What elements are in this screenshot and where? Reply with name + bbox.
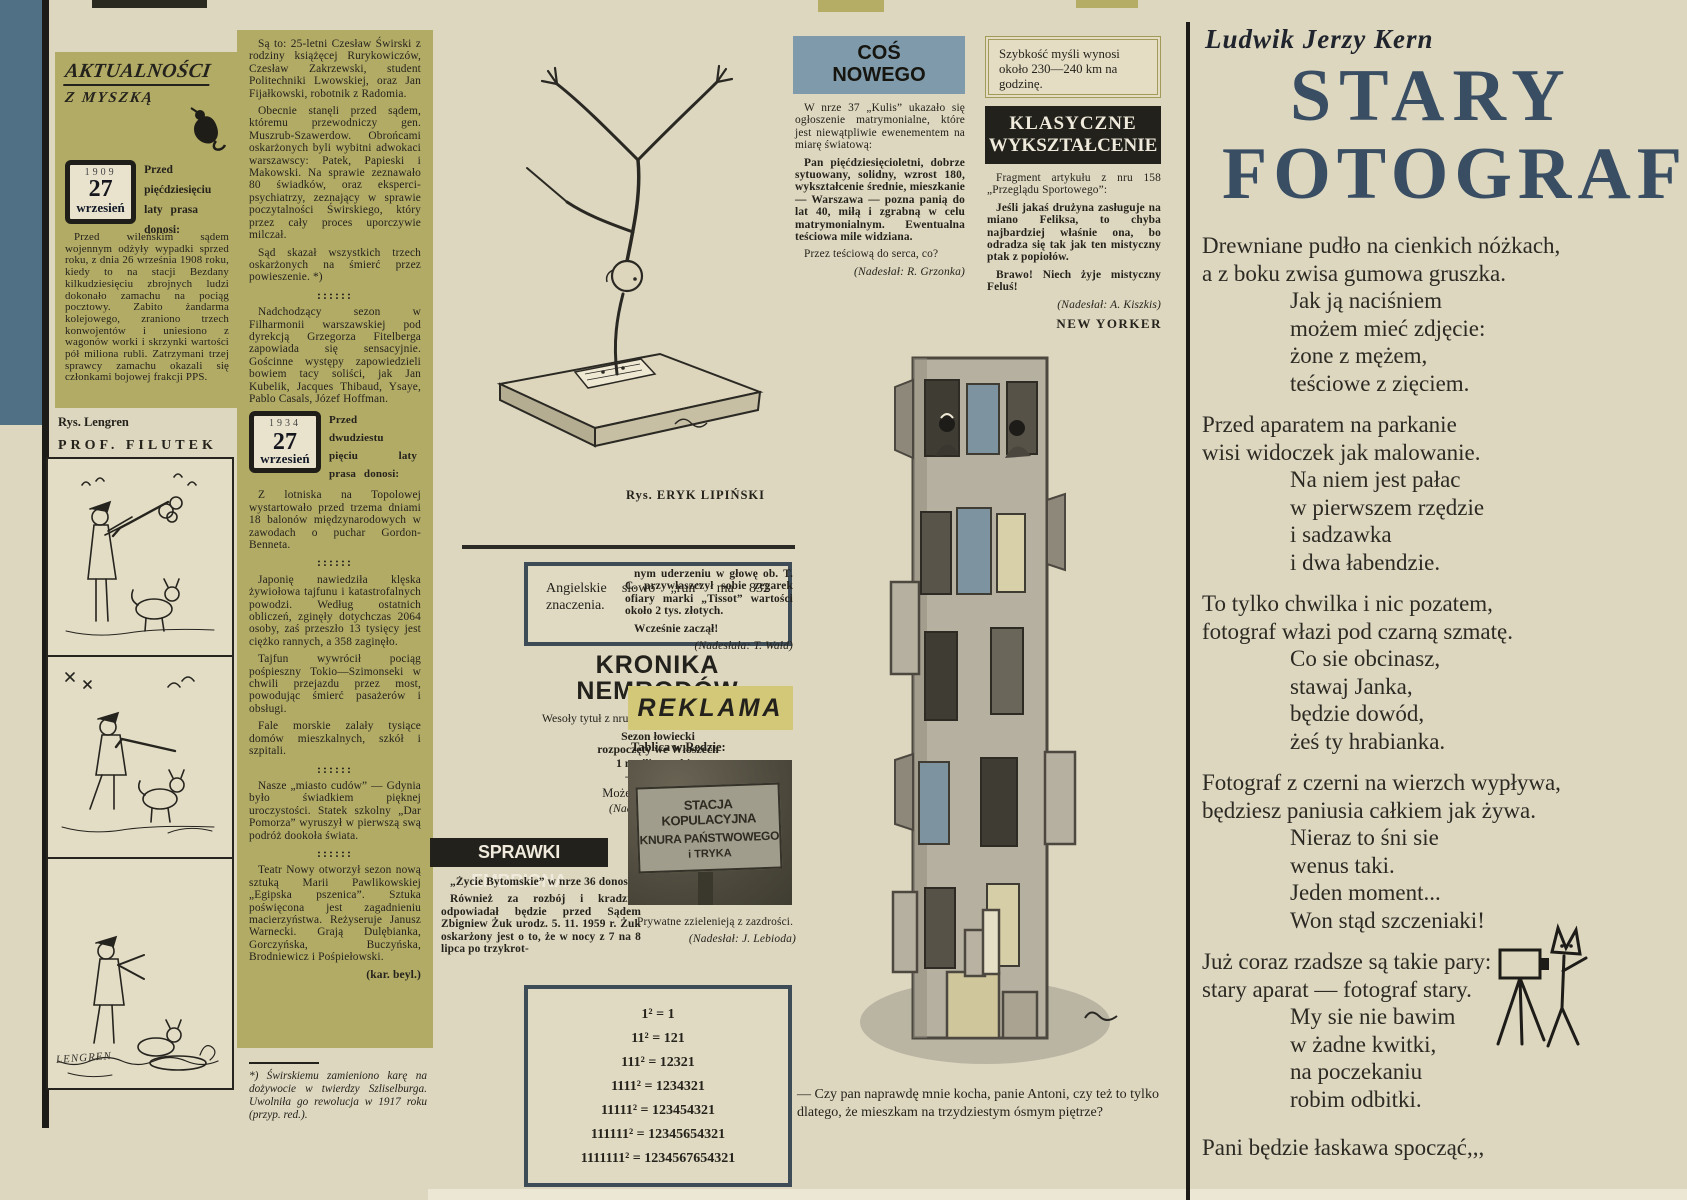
paragraph: Sąd skazał wszystkich trzech oskarżonych… [249,247,421,284]
poem-line: w pierwszem rzędzie [1290,494,1687,522]
masthead: AKTUALNOŚCI Z MYSZKĄ [65,60,229,160]
paragraph: Nadchodzący sezon w Filharmonii warszaws… [249,306,421,405]
lead-1909: Przed pięćdziesięciu laty prasa donosi: [144,160,229,240]
poem-line: stawaj Janka, [1290,673,1687,701]
new-yorker-cartoon-drawing [795,332,1170,1080]
poem-line: żone z mężem, [1290,342,1687,370]
klasyczne-signature: (Nadesłał: A. Kiszkis) [987,299,1161,311]
column-divider-line [1186,22,1190,1200]
poem-line: robim odbitki. [1290,1086,1687,1114]
left-edge-blue-strip [0,0,42,425]
poem-line: Na niem jest pałac [1290,466,1687,494]
column-byline: (kar. beyl.) [249,969,421,981]
filutek-panel-2 [48,657,232,859]
reklama-intro: Tablica w Redzie: [631,740,791,755]
filutek-title: PROF. FILUTEK [58,438,217,454]
new-yorker-cartoon [795,332,1170,1080]
lipinski-cartoon [445,32,795,484]
klasyczne-title-line2: WYKSZTAŁCENIE [985,135,1161,157]
new-yorker-caption: — Czy pan naprawdę mnie kocha, panie Ant… [797,1086,1179,1121]
sign-line-3: i TRYKA [640,846,780,863]
szybkosc-box: Szybkość myśli wynosi około 230—240 km n… [985,36,1161,98]
sign-line-1: STACJA KOPULACYJNA [638,795,779,830]
poem-line: możem mieć zdjęcie: [1290,315,1687,343]
paragraph: Przed wileńskim sądem wojennym odżyły wy… [65,232,229,384]
cos-nowego-p3: Przez teściową do serca, co? [795,248,965,260]
top-edge-tab-olive-2 [1076,0,1138,8]
photographer-drawing [1482,916,1592,1051]
paragraph: Teatr Nowy otworzył sezon nową sztuką Ma… [249,864,421,963]
reklama-banner: REKLAMA [628,686,793,730]
poem-line: i sadzawka [1290,521,1687,549]
cos-nowego-p1: W nrze 37 „Kulis” ukazało się ogłoszenie… [795,102,965,152]
poem-stanza: Drewniane pudło na cienkich nóżkach, a z… [1202,232,1687,397]
bottom-edge-light-strip [428,1189,1687,1200]
poem-line: Przed aparatem na parkanie [1202,411,1687,439]
klasyczne-body: Fragment artykułu z nru 158 „Przeglądu S… [987,172,1161,311]
poem-author: Ludwik Jerzy Kern [1205,24,1434,55]
filutek-panel-1-drawing [48,459,232,653]
date-month: wrzesień [254,453,316,465]
reklama-comment: Prywatne zzielenieją z zazdrości. (Nades… [628,916,796,946]
poem-line: a z boku zwisa gumowa gruszka. [1202,260,1687,288]
cos-nowego-title-line2: NOWEGO [793,64,965,86]
poem-line: stary aparat — fotograf stary. [1202,976,1687,1004]
klasyczne-p1: Fragment artykułu z nru 158 „Przeglądu S… [987,172,1161,197]
sign-line-2: KNURA PAŃSTWOWEGO [639,829,779,848]
paragraph: Japonię nawiedziła klęska żywiołowa tajf… [249,574,421,648]
poem-title-line1: STARY [1290,58,1573,134]
paragraph: Fale morskie zalały tysiące domów mieszk… [249,720,421,757]
date-row-1934: 1934 27 wrzesień Przed dwudziestu pięciu… [249,411,421,483]
reklama-title: REKLAMA [638,694,784,722]
szybkosc-text: Szybkość myśli wynosi około 230—240 km n… [999,47,1147,92]
date-box-1934: 1934 27 wrzesień [249,411,321,473]
poem-line: na poczekaniu [1290,1058,1687,1086]
poem-line: i dwa łabendzie. [1290,549,1687,577]
poem-line: będziesz paniusia całkiem jak żywa. [1202,797,1687,825]
poem-stanza: Przed aparatem na parkanie wisi widoczek… [1202,411,1687,576]
masthead-subtitle: Z MYSZKĄ [64,90,155,107]
magazine-page: AKTUALNOŚCI Z MYSZKĄ 1909 27 wrzesień Pr… [0,0,1687,1200]
lipinski-cartoon-drawing [445,32,795,484]
poem-closing-line: Pani będzie łaskawa spocząć,,, [1202,1134,1484,1162]
math-line: 1111² = 1234321 [536,1075,780,1099]
paragraph: Nasze „miasto cudów” — Gdynia było świad… [249,780,421,842]
paragraph: Z lotniska na Topolowej wystartowało prz… [249,489,421,551]
math-line: 1² = 1 [536,1003,780,1027]
date-box-1909: 1909 27 wrzesień [65,160,136,224]
poem-line: żeś ty hrabianka. [1290,728,1687,756]
cos-nowego-title-line1: COŚ [793,42,965,64]
aktualnosci-panel-column2: Są to: 25-letni Czesław Świrski z rodzin… [237,30,433,1048]
poem-line: wenus taki. [1290,852,1687,880]
klasyczne-banner: KLASYCZNE WYKSZTAŁCENIE [985,106,1161,164]
aktualnosci-panel-1909: AKTUALNOŚCI Z MYSZKĄ 1909 27 wrzesień Pr… [55,52,237,408]
section-separator: :::::: [249,763,421,775]
reklama-sign-photo: STACJA KOPULACYJNA KNURA PAŃSTWOWEGO i T… [628,760,792,905]
date-day: 27 [70,178,131,200]
sprawki-intro: „Życie Bytomskie” w nrze 36 donosi: [441,876,641,888]
date-month: wrzesień [70,200,131,216]
sprawki-continuation: nym uderzeniu w głowę ob. T. C. przywłas… [625,568,793,652]
lengren-credit: Rys. Lengren [58,415,129,430]
poem-body: Drewniane pudło na cienkich nóżkach, a z… [1202,232,1687,1127]
section-separator: :::::: [249,847,421,859]
sprawki-signature: (Nadesłała: T. Wald) [625,640,793,652]
poem-title-line2: FOTOGRAF [1222,136,1687,212]
photographer-icon [1482,916,1592,1051]
poem-line: Jeden moment... [1290,879,1687,907]
sign-post [698,872,713,905]
poem-stanza: Fotograf z czerni na wierzch wypływa, bę… [1202,769,1687,934]
mouse-icon [187,100,227,152]
filutek-panel-1 [48,459,232,657]
lead-1934: Przed dwudziestu pięciu laty prasa donos… [329,411,417,483]
cos-nowego-p2: Pan pięćdziesięcioletni, dobrze sytuowan… [795,157,965,244]
klasyczne-p3: Brawo! Niech żyje mistyczny Feluś! [987,269,1161,294]
poem-line: teściowe z zięciem. [1290,370,1687,398]
reklama-signature: (Nadesłał: J. Lebioda) [628,933,796,945]
date-row-1909: 1909 27 wrzesień Przed pięćdziesięciu la… [65,160,229,226]
sprawki-punchline: Wcześnie zaczął! [625,623,793,635]
sprawki-banner: SPRAWKI EMBRIONA [430,838,608,867]
kronika-title-line1: KRONIKA [520,652,795,678]
poem-line: Nieraz to śni sie [1290,824,1687,852]
paragraph: Obecnie stanęli przed sądem, któremu prz… [249,105,421,241]
date-day: 27 [254,431,316,453]
top-edge-tab-olive-1 [818,0,884,12]
new-yorker-label: NEW YORKER [1040,316,1162,332]
poem-stanza: To tylko chwilka i nic pozatem, fotograf… [1202,590,1687,755]
math-line: 111111² = 12345654321 [536,1123,780,1147]
filutek-panel-2-drawing [48,657,232,855]
masthead-title: AKTUALNOŚCI [63,60,212,86]
poem-line: Jak ją naciśniem [1290,287,1687,315]
poem-stanza: Już coraz rzadsze są takie pary: stary a… [1202,948,1687,1113]
cos-nowego-banner: COŚ NOWEGO [793,36,965,94]
poem-line: Już coraz rzadsze są takie pary: [1202,948,1687,976]
math-box: 1² = 1 11² = 121 111² = 12321 1111² = 12… [524,985,792,1187]
footnote: *) Świrskiemu zamieniono karę na dożywoc… [249,1070,427,1122]
math-line: 111² = 12321 [536,1051,780,1075]
sprawki-text: Również za rozbój i kradzież odpowiadał … [441,893,641,955]
cos-nowego-signature: (Nadesłał: R. Grzonka) [795,266,965,278]
math-line: 11² = 121 [536,1027,780,1051]
poem-line: Fotograf z czerni na wierzch wypływa, [1202,769,1687,797]
paragraph: Tajfun wywrócił pociąg pośpieszny Tokio—… [249,653,421,715]
center-rule [462,545,795,549]
poem-line: Drewniane pudło na cienkich nóżkach, [1202,232,1687,260]
math-line: 11111² = 123454321 [536,1099,780,1123]
math-line: 1111111² = 1234567654321 [536,1147,780,1171]
sprawki-text-2: nym uderzeniu w głowę ob. T. C. przywłas… [625,568,793,618]
section-separator: :::::: [249,289,421,301]
poem-line: wisi widoczek jak malowanie. [1202,439,1687,467]
article-1909-intro: Przed wileńskim sądem wojennym odżyły wy… [65,232,229,408]
lipinski-credit: Rys. ERYK LIPIŃSKI [598,488,793,503]
klasyczne-title-line1: KLASYCZNE [985,113,1161,135]
section-separator: :::::: [249,556,421,568]
poem-line: To tylko chwilka i nic pozatem, [1202,590,1687,618]
top-edge-tab-dark [92,0,207,8]
poem-line: będzie dowód, [1290,700,1687,728]
reklama-punchline: Prywatne zzielenieją z zazdrości. [628,916,796,928]
klasyczne-p2: Jeśli jakaś drużyna zasługuje na miano F… [987,202,1161,264]
footnote-rule [249,1062,319,1064]
reklama-sign-plate: STACJA KOPULACYJNA KNURA PAŃSTWOWEGO i T… [636,783,783,874]
poem-line: fotograf włazi pod czarną szmatę. [1202,618,1687,646]
cos-nowego-body: W nrze 37 „Kulis” ukazało się ogłoszenie… [795,102,965,278]
poem-line: Co sie obcinasz, [1290,645,1687,673]
paragraph: Są to: 25-letni Czesław Świrski z rodzin… [249,38,421,100]
filutek-comic-strip [46,457,234,1090]
